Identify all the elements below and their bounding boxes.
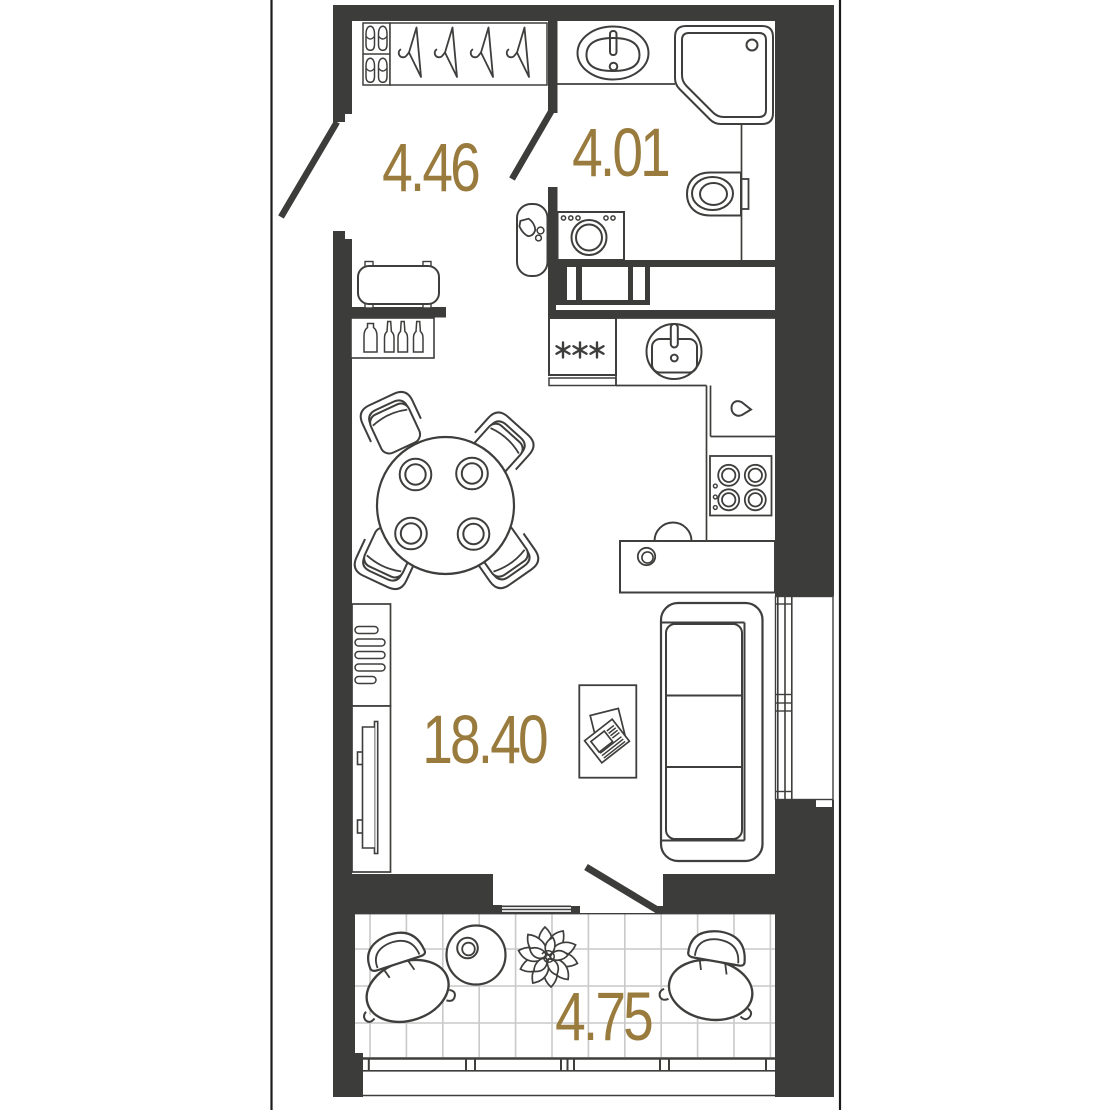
svg-text:4.46: 4.46 — [382, 130, 478, 206]
svg-text:4.01: 4.01 — [572, 115, 668, 191]
svg-text:4.75: 4.75 — [555, 979, 651, 1055]
svg-text:18.40: 18.40 — [422, 702, 547, 778]
